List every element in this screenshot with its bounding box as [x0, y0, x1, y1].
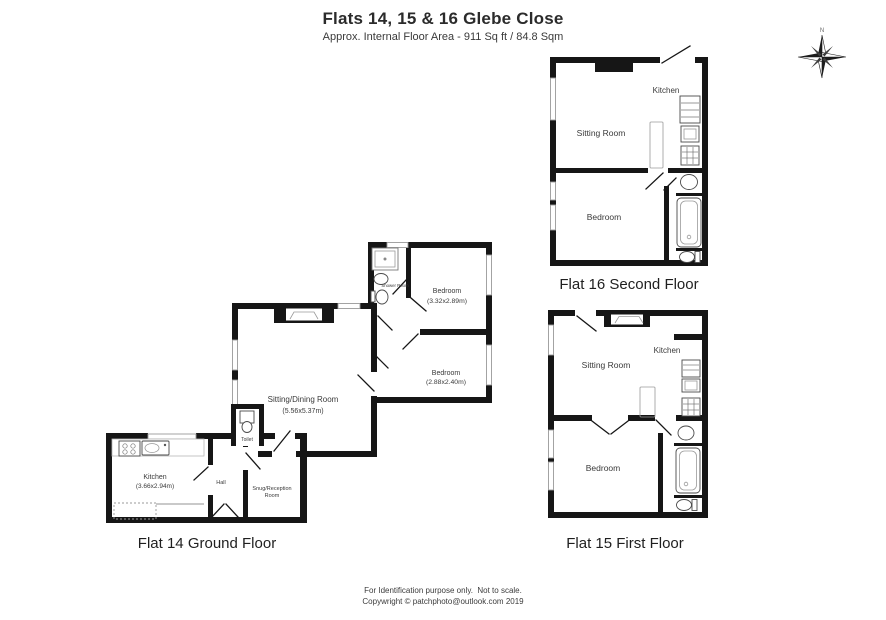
flat16-bathroom-fixtures — [676, 175, 702, 263]
flat15-plan-title: Flat 15 First Floor — [566, 535, 684, 552]
flat14-bedroom1-dims: (3.32x2.89m) — [427, 298, 467, 305]
flat14-sitting-room-dims: (5.56x5.37m) — [282, 408, 323, 415]
floorplan-drawing: N — [0, 0, 886, 620]
flat15-plan: Kitchen Sitting Room Bedroom Flat 15 Fir… — [548, 310, 708, 552]
footer-copyright: Copywright © patchphoto@outlook.com 2019 — [0, 597, 886, 606]
flat14-snug-label-line1: Snug/Reception — [252, 486, 291, 492]
flat15-kitchen-appliances — [640, 360, 700, 417]
flat14-plan-title: Flat 14 Ground Floor — [138, 535, 276, 552]
flat16-sitting-room-label: Sitting Room — [577, 128, 626, 138]
flat14-shower-room-label: Shower Room — [381, 283, 409, 288]
flat14-sitting-room-label: Sitting/Dining Room — [268, 395, 339, 404]
flat16-plan: Kitchen Sitting Room Bedroom Flat 16 Sec… — [550, 46, 708, 293]
flat14-shower-room-fixtures — [371, 248, 398, 304]
flat14-kitchen-label: Kitchen — [143, 474, 166, 481]
flat15-sitting-room-label: Sitting Room — [582, 360, 631, 370]
flat14-snug-label-line2: Room — [265, 493, 280, 499]
floorplan-page: Flats 14, 15 & 16 Glebe Close Approx. In… — [0, 0, 886, 620]
flat16-kitchen-label: Kitchen — [653, 86, 680, 95]
compass-rose: N — [798, 28, 846, 78]
footer-disclaimer: For Identification purpose only. Not to … — [0, 586, 886, 595]
flat16-kitchen-appliances — [650, 96, 700, 168]
flat16-plan-title: Flat 16 Second Floor — [559, 276, 698, 293]
flat16-bedroom-label: Bedroom — [587, 212, 622, 222]
flat14-hall-label: Hall — [216, 480, 225, 486]
flat15-kitchen-label: Kitchen — [654, 346, 681, 355]
compass-north-label: N — [820, 28, 824, 34]
flat14-plan: Kitchen (3.66x2.94m) Hall Snug/Reception… — [106, 242, 492, 552]
flat15-bathroom-fixtures — [674, 426, 702, 511]
flat14-bedroom1-label: Bedroom — [433, 288, 462, 295]
flat14-bedroom2-dims: (2.88x2.40m) — [426, 379, 466, 386]
flat14-bedroom2-label: Bedroom — [432, 370, 461, 377]
flat14-toilet-label: Toilet — [241, 437, 253, 443]
flat15-bedroom-label: Bedroom — [586, 463, 621, 473]
flat14-kitchen-dims: (3.66x2.94m) — [136, 483, 174, 490]
